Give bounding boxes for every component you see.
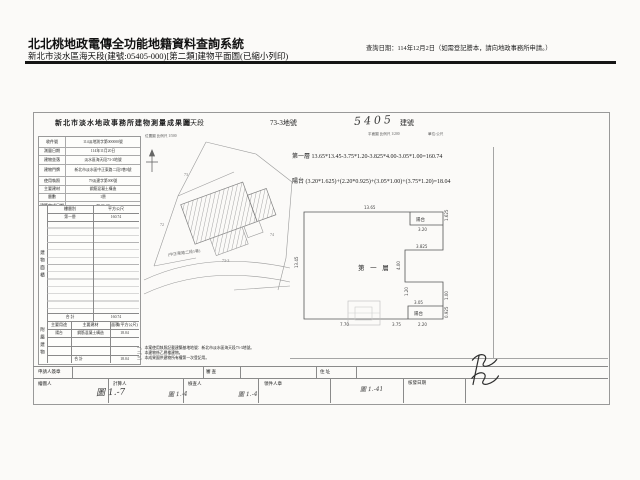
dim-label: 7.70 <box>340 322 349 327</box>
form-title: 新北市淡水地政事務所建物測量成果圖 <box>55 118 191 128</box>
info-label: 主要建材 <box>39 186 66 193</box>
info-label: 建物坐落 <box>39 156 66 164</box>
annex-row-material: 鋼筋混凝土構造 <box>71 329 110 337</box>
drafter-label: 繪圖人 <box>38 381 52 387</box>
main-building-vertical-label: 建物面積 <box>38 215 47 315</box>
area-row-value: 160.74 <box>93 213 139 221</box>
annex-total-label: 合 計 <box>47 355 110 363</box>
handwritten-signature <box>465 350 505 392</box>
area-header-floor: 樓層別 <box>47 205 93 213</box>
inspector-label: 檢查人 <box>188 381 202 387</box>
dim-label: 3.20 <box>418 227 427 232</box>
header-rule <box>25 61 616 64</box>
north-arrow-icon <box>146 150 158 172</box>
floor-plan-drawing: 第 一 層 陽台 陽台 13.65 13.45 3.20 1.625 3.825… <box>288 196 463 338</box>
lot-number: 73-3地號 <box>270 118 297 128</box>
dim-label: 1.20 <box>404 287 409 296</box>
info-value: 1層 <box>66 194 140 201</box>
dim-label: 3.75 <box>392 322 401 327</box>
building-number-label: 建號 <box>400 118 414 128</box>
note-line: 三、本成果圖供建物所有權第一次登記用。 <box>137 356 302 361</box>
annex-header-material: 主要建材 <box>71 321 110 329</box>
dim-label: 2.20 <box>418 322 427 327</box>
dim-label: 3.825 <box>416 244 428 249</box>
dim-label: 1.00 <box>444 291 449 300</box>
query-date: 查詢日期：114年12月2日（如需登記謄本，請向地政事務所申請。） <box>366 43 552 52</box>
review-label: 審 查 <box>206 369 216 375</box>
handwritten-mark: 圖 1.-7 <box>96 384 126 398</box>
section-name: 海天段 <box>183 118 204 128</box>
info-value: 114年11月20日 <box>66 148 140 155</box>
receiver-stamp-label: 領件人章 <box>264 381 282 387</box>
info-value: 79淡建字第000號 <box>66 177 140 185</box>
dim-label: 3.05 <box>414 300 423 305</box>
area-row-floor: 第一層 <box>47 213 93 221</box>
dim-label: 4.00 <box>396 261 401 270</box>
dim-label: 0.925 <box>444 306 449 318</box>
info-value: 淡水區海天段73-3地號 <box>66 156 140 164</box>
scanned-document-page: 北北桃地政電傳全功能地籍資料查詢系統 查詢日期：114年12月2日（如需登記謄本… <box>0 0 640 480</box>
road-name-label: (中正東路二段5巷) <box>167 247 201 257</box>
annex-row-area: 18.04 <box>110 329 139 337</box>
lot-label: 73 <box>184 172 188 177</box>
info-label: 層數 <box>39 194 66 201</box>
annex-header-area: 面積(平方公尺) <box>110 321 139 329</box>
info-value: 鋼筋混凝土構造 <box>66 186 140 193</box>
balcony-bottom-label: 陽台 <box>414 310 423 317</box>
floor-plan-caption: 平面圖 比例尺 1/200 <box>368 132 400 137</box>
handwritten-mark: 圖 1.-4 <box>238 389 258 399</box>
area-total-value: 160.74 <box>93 313 139 321</box>
applicant-signature-label: 申請人簽章 <box>38 369 61 375</box>
lot-label: 74 <box>270 232 274 237</box>
info-value: 114淡地測字第000000號 <box>66 137 140 147</box>
info-label: 收件號 <box>39 137 66 147</box>
info-value: 新北市淡水區中正東路二段5巷0號 <box>66 165 140 176</box>
building-info-table: 收件號 114淡地測字第000000號 測量日期 114年11月20日 建物坐落… <box>38 136 141 211</box>
info-label: 使用執照 <box>39 177 66 185</box>
annex-row-use: 陽台 <box>47 329 71 337</box>
balcony-top-outline <box>410 212 443 225</box>
handwritten-building-number: 5405 <box>354 113 395 128</box>
formula-first-floor: 第一層 13.65*13.45-3.75*1.20-3.825*4.00-3.0… <box>292 151 442 160</box>
lot-label: 72 <box>160 222 164 227</box>
info-label: 建物門牌 <box>39 165 66 176</box>
address-label: 住 址 <box>320 369 330 375</box>
site-location-map: (中正東路二段5巷) 73 73-3 74 72 <box>138 138 296 334</box>
porch-steps <box>348 301 380 325</box>
handwritten-mark: 圖 1.-41 <box>360 384 384 394</box>
first-floor-label: 第 一 層 <box>358 263 391 272</box>
annex-total-value: 18.04 <box>110 355 139 363</box>
unit-caption: 單位:公尺 <box>428 132 443 137</box>
balcony-top-label: 陽台 <box>416 216 425 223</box>
dim-label: 13.65 <box>364 205 376 210</box>
area-total-label: 合 計 <box>47 313 93 321</box>
issue-date-label: 核發日期 <box>408 380 426 386</box>
dim-label: 1.625 <box>444 209 449 221</box>
formula-balcony: 陽台 (3.20*1.625)+(2.20*0.925)+(3.05*1.00)… <box>292 176 451 185</box>
handwritten-mark: 圖 1.-4 <box>168 388 188 398</box>
dim-label: 13.45 <box>294 256 299 268</box>
area-header-sqm: 平方公尺 <box>93 205 139 213</box>
annex-building-vertical-label: 附屬建物 <box>38 322 47 362</box>
notes-block: 一、本案使用執照記載建築基地地號：新北市淡水區海天段73-3地號。 二、本建物係… <box>137 346 302 361</box>
info-label: 測量日期 <box>39 148 66 155</box>
lot-label: 73-3 <box>222 258 229 263</box>
annex-header-use: 主要用途 <box>47 321 71 329</box>
